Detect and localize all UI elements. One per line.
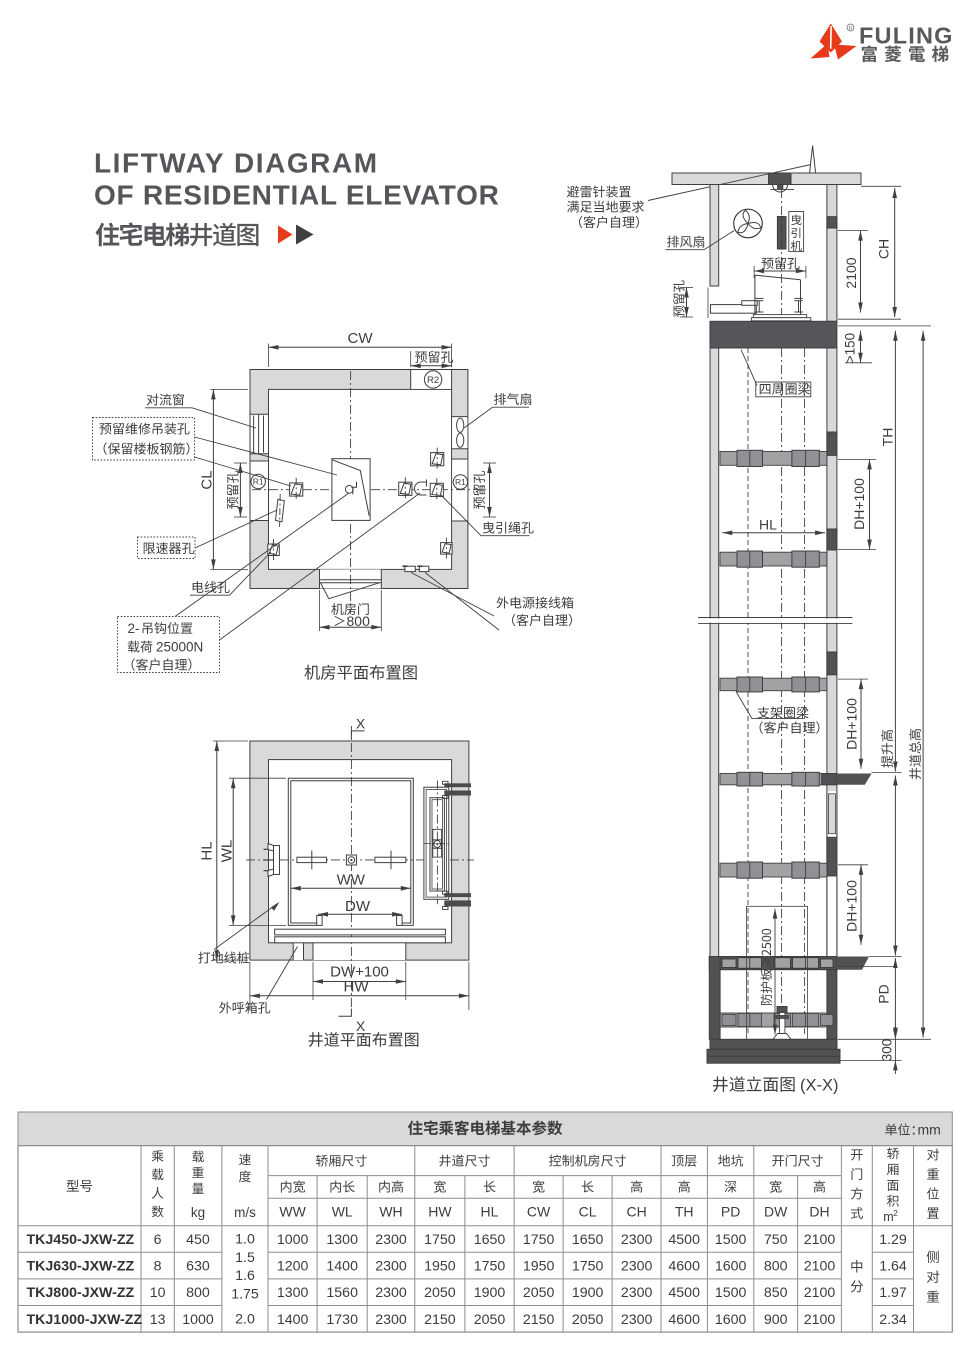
svg-text:OF RESIDENTIAL ELEVATOR: OF RESIDENTIAL ELEVATOR xyxy=(94,180,500,211)
svg-text:750: 750 xyxy=(764,1232,788,1248)
svg-text:TKJ630-JXW-ZZ: TKJ630-JXW-ZZ xyxy=(27,1259,135,1275)
svg-text:1560: 1560 xyxy=(326,1285,358,1301)
svg-text:630: 630 xyxy=(186,1259,210,1275)
svg-text:1.97: 1.97 xyxy=(879,1285,907,1301)
svg-text:2300: 2300 xyxy=(621,1232,653,1248)
svg-text:2100: 2100 xyxy=(804,1285,836,1301)
svg-text:1.6: 1.6 xyxy=(235,1268,255,1284)
svg-text:8: 8 xyxy=(154,1259,162,1275)
svg-text:2150: 2150 xyxy=(523,1312,555,1328)
svg-text:>150: >150 xyxy=(843,333,858,363)
svg-text:CH: CH xyxy=(626,1204,646,1220)
svg-text:TKJ450-JXW-ZZ: TKJ450-JXW-ZZ xyxy=(27,1232,135,1248)
svg-text:2100: 2100 xyxy=(804,1259,836,1275)
svg-text:2300: 2300 xyxy=(375,1285,407,1301)
svg-text:450: 450 xyxy=(186,1232,210,1248)
svg-text:WL: WL xyxy=(332,1204,353,1220)
svg-text:1750: 1750 xyxy=(424,1232,456,1248)
svg-text:1900: 1900 xyxy=(572,1285,604,1301)
svg-text:TH: TH xyxy=(880,428,896,447)
svg-text:DH+100: DH+100 xyxy=(844,880,860,932)
svg-text:X: X xyxy=(356,716,366,732)
svg-text:6: 6 xyxy=(154,1232,162,1248)
svg-text:DH+100: DH+100 xyxy=(851,478,867,530)
svg-text:PD: PD xyxy=(876,984,892,1003)
svg-text:R1: R1 xyxy=(253,477,264,487)
svg-text:4500: 4500 xyxy=(668,1232,700,1248)
svg-text:1000: 1000 xyxy=(182,1312,214,1328)
svg-text:FULING: FULING xyxy=(859,23,954,49)
svg-text:1750: 1750 xyxy=(523,1232,555,1248)
svg-text:HW: HW xyxy=(344,979,370,996)
svg-text:R: R xyxy=(849,26,853,32)
svg-text:2300: 2300 xyxy=(375,1232,407,1248)
svg-text:2: 2 xyxy=(893,1208,898,1218)
svg-text:2300: 2300 xyxy=(621,1312,653,1328)
svg-text:2050: 2050 xyxy=(523,1285,555,1301)
svg-text:CL: CL xyxy=(199,470,216,489)
svg-text:1.29: 1.29 xyxy=(879,1232,907,1248)
svg-text:2050: 2050 xyxy=(474,1312,506,1328)
svg-text:300: 300 xyxy=(880,1039,895,1062)
svg-text:CL: CL xyxy=(579,1204,597,1220)
svg-text:1750: 1750 xyxy=(474,1259,506,1275)
svg-text:1730: 1730 xyxy=(326,1312,358,1328)
svg-text:800: 800 xyxy=(186,1285,210,1301)
svg-text:LIFTWAY DIAGRAM: LIFTWAY DIAGRAM xyxy=(94,148,379,179)
svg-text:HL: HL xyxy=(199,841,216,860)
svg-text:1000: 1000 xyxy=(277,1232,309,1248)
svg-text:10: 10 xyxy=(150,1285,166,1301)
svg-text:TKJ1000-JXW-ZZ: TKJ1000-JXW-ZZ xyxy=(27,1312,143,1328)
svg-text:DH+100: DH+100 xyxy=(844,698,860,750)
svg-text:TH: TH xyxy=(675,1204,694,1220)
svg-text:CH: CH xyxy=(875,239,891,259)
svg-text:4500: 4500 xyxy=(668,1285,700,1301)
svg-text:1650: 1650 xyxy=(572,1232,604,1248)
svg-text:1.5: 1.5 xyxy=(235,1250,255,1266)
svg-text:2150: 2150 xyxy=(424,1312,456,1328)
svg-text:1750: 1750 xyxy=(572,1259,604,1275)
svg-text:2.0: 2.0 xyxy=(235,1312,255,1328)
svg-text:1.75: 1.75 xyxy=(231,1286,259,1302)
svg-text:1500: 1500 xyxy=(715,1232,747,1248)
svg-text:CW: CW xyxy=(527,1204,551,1220)
svg-text:WW: WW xyxy=(337,872,366,889)
svg-text:25000N: 25000N xyxy=(156,640,203,655)
svg-text:WH: WH xyxy=(379,1204,402,1220)
svg-text:2-: 2- xyxy=(128,621,140,636)
svg-text:1.0: 1.0 xyxy=(235,1232,255,1248)
svg-text:13: 13 xyxy=(150,1312,166,1328)
svg-text:2300: 2300 xyxy=(621,1285,653,1301)
svg-text:1950: 1950 xyxy=(424,1259,456,1275)
svg-text:2.34: 2.34 xyxy=(879,1312,907,1328)
svg-text:4600: 4600 xyxy=(668,1259,700,1275)
svg-text:2100: 2100 xyxy=(804,1312,836,1328)
svg-text:800: 800 xyxy=(764,1259,788,1275)
svg-text:DH: DH xyxy=(809,1204,829,1220)
svg-text:900: 900 xyxy=(764,1312,788,1328)
svg-text:2300: 2300 xyxy=(621,1259,653,1275)
svg-text:m/s: m/s xyxy=(234,1205,256,1220)
svg-text:1400: 1400 xyxy=(326,1259,358,1275)
svg-text:DW: DW xyxy=(764,1204,788,1220)
svg-text:800: 800 xyxy=(347,613,371,629)
svg-text:1.64: 1.64 xyxy=(879,1259,907,1275)
svg-text:1300: 1300 xyxy=(326,1232,358,1248)
svg-text:PD: PD xyxy=(721,1204,740,1220)
svg-text:1600: 1600 xyxy=(715,1312,747,1328)
svg-text:DW: DW xyxy=(345,898,371,915)
svg-text:1300: 1300 xyxy=(277,1285,309,1301)
svg-text:4600: 4600 xyxy=(668,1312,700,1328)
svg-text:2100: 2100 xyxy=(804,1232,836,1248)
svg-text:WL: WL xyxy=(219,840,236,863)
svg-text:HL: HL xyxy=(481,1204,499,1220)
svg-text:850: 850 xyxy=(764,1285,788,1301)
svg-text:kg: kg xyxy=(191,1205,205,1220)
svg-text:2100: 2100 xyxy=(843,257,859,288)
svg-text:X: X xyxy=(356,1018,366,1034)
svg-text:1200: 1200 xyxy=(277,1259,309,1275)
svg-text:2300: 2300 xyxy=(375,1259,407,1275)
svg-text:HW: HW xyxy=(428,1204,452,1220)
svg-text:2300: 2300 xyxy=(375,1312,407,1328)
svg-text:2050: 2050 xyxy=(424,1285,456,1301)
svg-text:1600: 1600 xyxy=(715,1259,747,1275)
svg-text:1650: 1650 xyxy=(474,1232,506,1248)
svg-text:R1: R1 xyxy=(455,477,466,487)
svg-text:WW: WW xyxy=(279,1204,306,1220)
svg-text:1400: 1400 xyxy=(277,1312,309,1328)
svg-text:mm: mm xyxy=(918,1122,941,1138)
svg-text:2050: 2050 xyxy=(572,1312,604,1328)
svg-text:HL: HL xyxy=(759,517,777,533)
svg-text:TKJ800-JXW-ZZ: TKJ800-JXW-ZZ xyxy=(27,1285,135,1301)
svg-text:(X-X): (X-X) xyxy=(800,1077,839,1095)
svg-text:1900: 1900 xyxy=(474,1285,506,1301)
svg-text:R2: R2 xyxy=(427,375,439,386)
svg-text:1950: 1950 xyxy=(523,1259,555,1275)
svg-text:1500: 1500 xyxy=(715,1285,747,1301)
svg-text:CW: CW xyxy=(348,330,374,347)
